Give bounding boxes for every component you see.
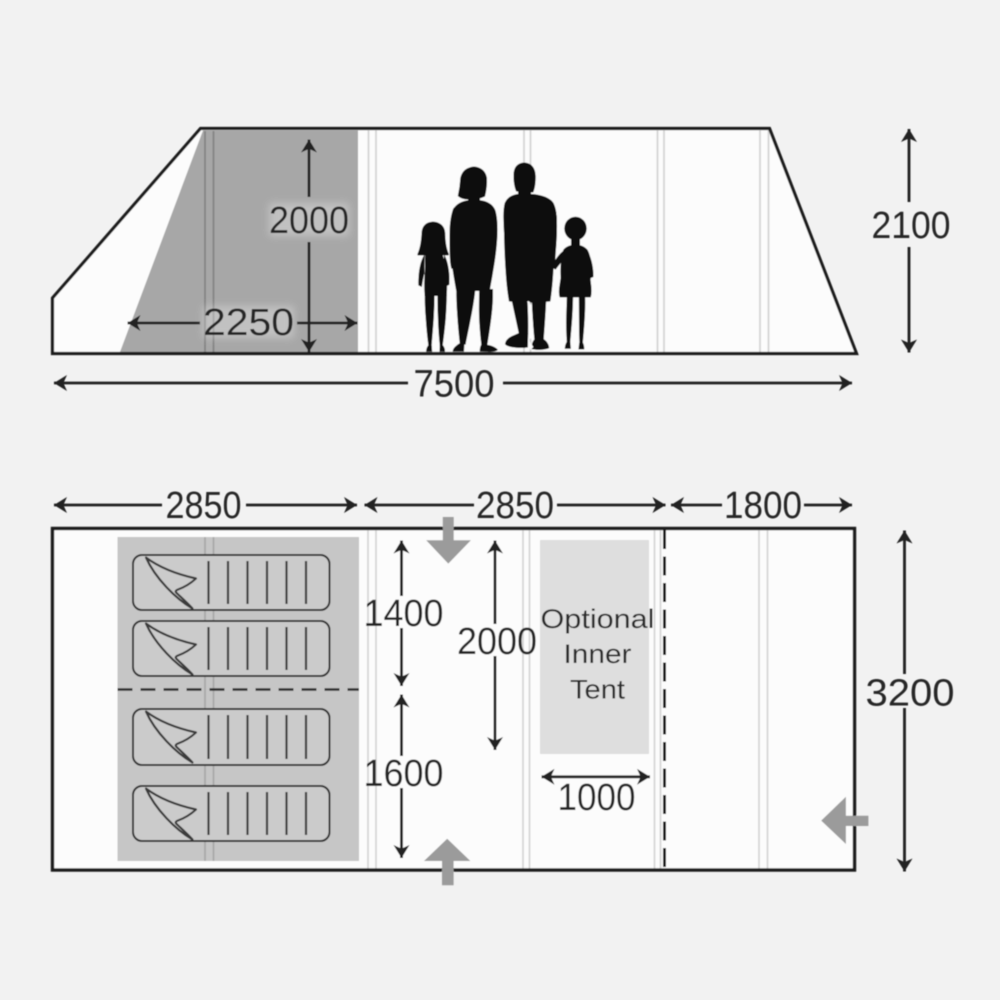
svg-text:2850: 2850 (476, 485, 554, 527)
svg-text:1400: 1400 (364, 593, 444, 635)
svg-text:7500: 7500 (414, 364, 495, 406)
svg-text:Optional: Optional (541, 604, 655, 634)
svg-text:2850: 2850 (166, 485, 242, 527)
svg-text:2100: 2100 (872, 205, 951, 247)
svg-text:2000: 2000 (457, 621, 537, 663)
svg-text:1000: 1000 (558, 777, 636, 819)
svg-text:Tent: Tent (570, 675, 626, 705)
svg-text:1600: 1600 (364, 753, 444, 795)
svg-text:3200: 3200 (866, 673, 955, 715)
svg-text:1800: 1800 (724, 485, 802, 527)
svg-text:2250: 2250 (203, 302, 294, 344)
svg-text:Inner: Inner (564, 639, 632, 669)
svg-text:2000: 2000 (269, 200, 349, 242)
